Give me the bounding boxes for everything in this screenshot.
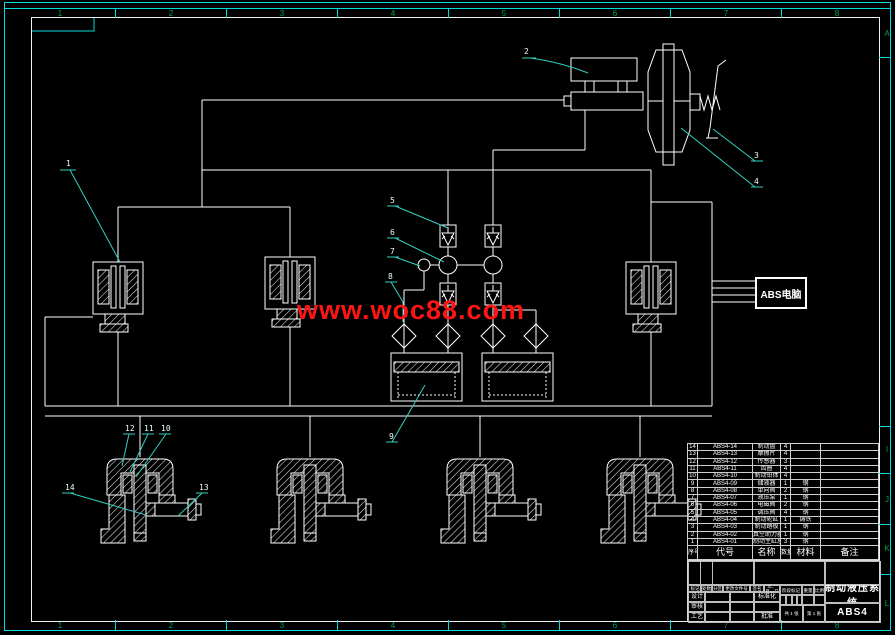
part-qty: 1 [781,495,791,502]
part-note [821,451,879,458]
part-note [821,509,879,516]
part-name: 调压阀 [753,509,781,516]
table-row: 13 ABS4-13 摩擦片 4 [688,451,879,458]
part-code: ABS4-07 [698,495,753,502]
callout-label: 2 [524,48,529,56]
callout-label: 4 [754,178,759,186]
part-code: ABS4-03 [698,524,753,531]
part-code: ABS4-08 [698,487,753,494]
table-row: 1 ABS4-01 制动主缸总成 3 钢 [688,538,879,545]
part-qty: 4 [781,465,791,472]
part-code: ABS4-01 [698,538,753,545]
col-header: 备注 [821,546,879,560]
part-qty: 3 [781,538,791,545]
wheel-assembly [441,459,541,543]
part-material: 钢 [791,509,821,516]
part-qty: 2 [781,487,791,494]
callout-label: 3 [754,152,759,160]
part-note [821,480,879,487]
part-material: 钢 [791,524,821,531]
part-name: 液压泵 [753,495,781,502]
part-no: 10 [688,473,698,480]
part-no: 8 [688,487,698,494]
part-note [821,524,879,531]
part-qty: 1 [781,516,791,523]
col-header: 数量 [781,546,791,560]
table-row: 3 ABS4-03 制动踏板 1 钢 [688,524,879,531]
wheel-assembly [271,459,371,543]
part-code: ABS4-11 [698,465,753,472]
part-code: ABS4-06 [698,502,753,509]
return-spring [700,96,720,110]
master-cylinder [571,92,643,110]
fluid-reservoir [571,58,637,81]
part-note [821,487,879,494]
part-material [791,458,821,465]
part-qty: 2 [781,502,791,509]
part-note [821,465,879,472]
sheet-total: 共 1 张 [779,604,804,623]
part-material: 钢 [791,487,821,494]
part-name: 制动盘 [753,444,781,451]
part-qty: 4 [781,473,791,480]
col-header: 材料 [791,546,821,560]
part-qty: 3 [781,458,791,465]
wheel-assembly [101,459,201,543]
part-note [821,502,879,509]
pump-circle [484,256,502,274]
part-qty: 1 [781,524,791,531]
table-row: 14 ABS4-14 制动盘 4 [688,444,879,451]
part-note [821,495,879,502]
part-note [821,531,879,538]
callout-label: 6 [390,229,395,237]
part-note [821,516,879,523]
col-header: 代号 [698,546,753,560]
callout-label: 12 [125,425,135,433]
part-code: ABS4-14 [698,444,753,451]
part-no: 13 [688,451,698,458]
watermark-text: www.woc88.com [297,295,525,326]
part-material: 钢 [791,502,821,509]
abs-computer-box: ABS电脑 [755,277,807,309]
part-material: 钢 [791,538,821,545]
abs-computer-label: ABS电脑 [760,286,801,301]
col-header: 名称 [753,546,781,560]
parts-list-table: 14 ABS4-14 制动盘 4 13 ABS4-13 摩擦片 4 [687,443,879,560]
part-note [821,444,879,451]
table-row: 5 ABS4-05 调压阀 4 钢 [688,509,879,516]
table-row: 7 ABS4-07 液压泵 1 钢 [688,495,879,502]
part-name: 摩擦片 [753,451,781,458]
wheel-assembly [601,459,701,543]
sheet-number: 第 1 张 [802,604,826,623]
wheel-cylinder-symbol [626,262,676,332]
cad-drawing-sheet: 1 2 3 4 5 6 7 8 1 2 3 4 5 6 7 8 A I J K … [0,0,895,635]
callout-label: 7 [390,248,395,256]
motor-circle [418,259,430,271]
callout-label: 10 [161,425,171,433]
part-no: 5 [688,509,698,516]
part-material: 钢 [791,531,821,538]
callout-label: 14 [65,484,75,492]
table-row: 2 ABS4-02 真空助力器 1 钢 [688,531,879,538]
part-qty: 1 [781,480,791,487]
part-name: 制动钳体 [753,473,781,480]
table-header-row: 序号 代号 名称 数量 材料 备注 [688,546,879,560]
part-qty: 4 [781,451,791,458]
part-no: 9 [688,480,698,487]
part-code: ABS4-05 [698,509,753,516]
accumulator-right [482,353,553,401]
drawing-title: 制动液压系统 [824,584,881,604]
part-name: 单向阀 [753,487,781,494]
part-no: 12 [688,458,698,465]
part-material: 铸铁 [791,516,821,523]
part-material [791,473,821,480]
part-name: 制动主缸总成 [753,538,781,545]
table-row: 4 ABS4-04 制动轮缸 1 铸铁 [688,516,879,523]
approve-label: 批准 [753,611,781,623]
callout-label: 13 [199,484,209,492]
part-material [791,451,821,458]
part-name: 电磁阀 [753,502,781,509]
part-material: 钢 [791,480,821,487]
wheel-cylinder-symbol [93,262,143,332]
table-row: 6 ABS4-06 电磁阀 2 钢 [688,502,879,509]
accumulator-left [391,353,462,401]
col-header: 序号 [688,546,698,560]
part-no: 1 [688,538,698,545]
part-no: 2 [688,531,698,538]
drawing-number: ABS4 [824,602,881,623]
part-no: 6 [688,502,698,509]
part-note [821,458,879,465]
part-name: 制动轮缸 [753,516,781,523]
part-name: 传感器 [753,458,781,465]
part-code: ABS4-09 [698,480,753,487]
master-cylinder-assembly [564,44,726,165]
part-name: 储液器 [753,480,781,487]
pump-circle [439,256,457,274]
part-no: 11 [688,465,698,472]
part-code: ABS4-04 [698,516,753,523]
table-row: 10 ABS4-10 制动钳体 4 [688,473,879,480]
part-code: ABS4-13 [698,451,753,458]
title-block: 标记 处数 分区 更改文件号 签名 年、月、日 设计 审核 工艺 标准化 批准 … [687,560,880,622]
table-row: 8 ABS4-08 单向阀 2 钢 [688,487,879,494]
part-name: 真空助力器 [753,531,781,538]
part-material: 钢 [791,495,821,502]
part-code: ABS4-12 [698,458,753,465]
part-no: 14 [688,444,698,451]
part-no: 3 [688,524,698,531]
table-row: 12 ABS4-12 传感器 3 [688,458,879,465]
part-name: 制动踏板 [753,524,781,531]
part-qty: 1 [781,531,791,538]
table-row: 9 ABS4-09 储液器 1 钢 [688,480,879,487]
part-code: ABS4-10 [698,473,753,480]
frame-step [32,18,94,31]
part-material [791,444,821,451]
callout-label: 9 [389,433,394,441]
callout-label: 8 [388,273,393,281]
callout-label: 1 [66,160,71,168]
part-note [821,538,879,545]
part-no: 4 [688,516,698,523]
part-qty: 4 [781,509,791,516]
part-material [791,465,821,472]
callout-label: 5 [390,197,395,205]
callout-label: 11 [144,425,154,433]
part-qty: 4 [781,444,791,451]
part-name: 齿圈 [753,465,781,472]
part-note [821,473,879,480]
table-row: 11 ABS4-11 齿圈 4 [688,465,879,472]
part-no: 7 [688,495,698,502]
part-code: ABS4-02 [698,531,753,538]
